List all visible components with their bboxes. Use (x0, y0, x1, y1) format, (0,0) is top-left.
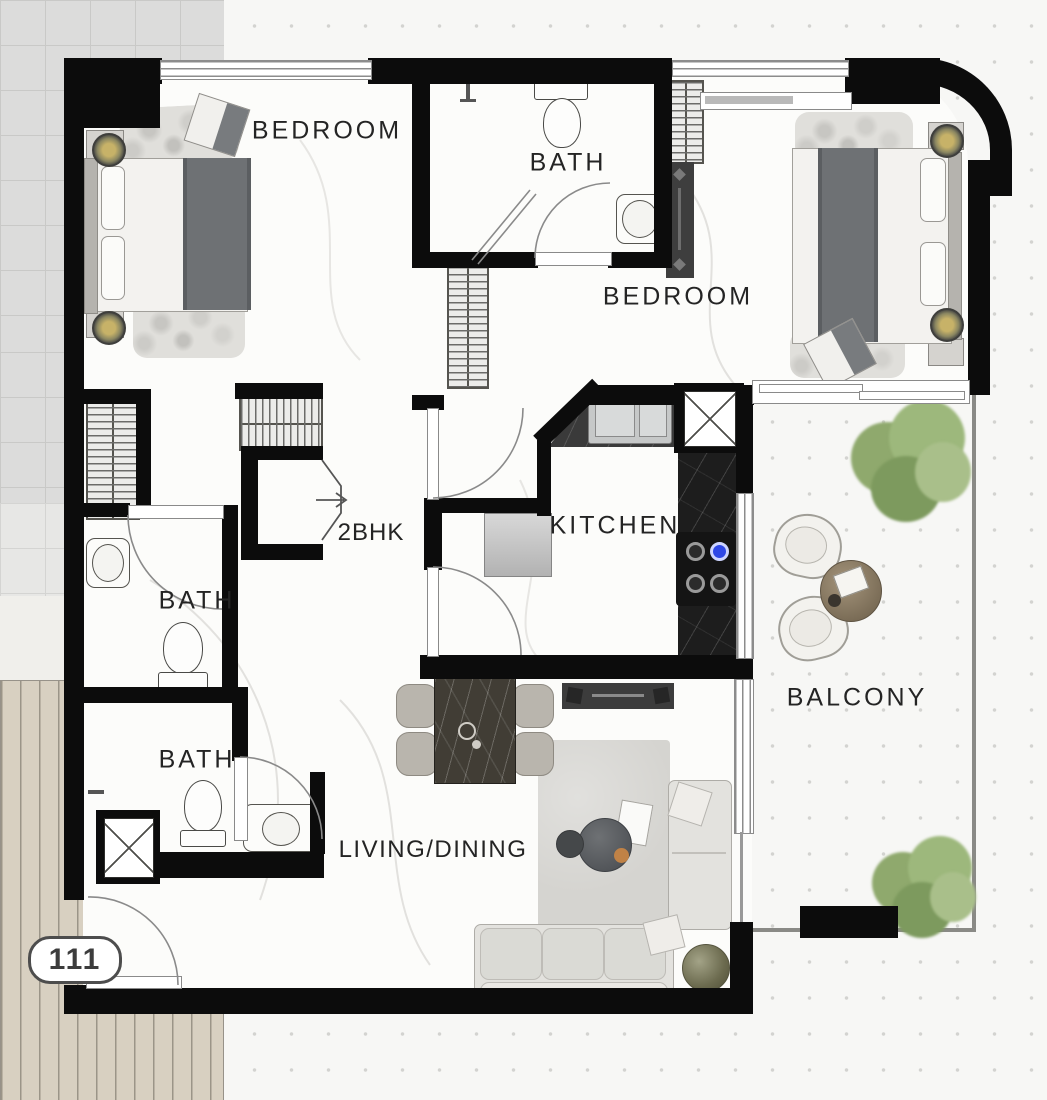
slider-open-line (740, 832, 743, 922)
balcony-slider-frame (752, 380, 970, 404)
bedroom2-curtain-box (700, 92, 852, 110)
bed2-pillow-bottom (920, 242, 946, 306)
dining-chair (396, 732, 438, 776)
bed1-pillow-bottom (101, 236, 125, 300)
dining-chair (512, 684, 554, 728)
wall-dressing-top-b (235, 383, 323, 399)
balcony-table-cup (828, 594, 841, 607)
wall-bath-lower-right-lower (310, 772, 325, 854)
wall-right (968, 160, 990, 395)
wall-bottom-left-stub (64, 985, 88, 1014)
closet-floor (0, 596, 64, 680)
door-leaf-bath-top (535, 252, 612, 266)
shaft-x-icon-bath (104, 818, 154, 878)
sink-icon-bath-lower (262, 812, 300, 846)
wall-closet-bottom (241, 544, 323, 560)
room-label-bath-lower: BATH (159, 746, 236, 775)
wall-bath-middle-top-stub (83, 503, 130, 517)
bowl-accent (614, 848, 629, 863)
kitchen-appliance (484, 513, 552, 577)
wardrobe-icon-bedroom2 (668, 80, 704, 164)
toilet-tank-bath-lower (180, 830, 226, 847)
room-label-bath-middle: BATH (159, 587, 236, 616)
wall-bath-top-bottom-a (412, 252, 538, 268)
window-top-left (160, 60, 372, 80)
wall-top-left-inner-block (66, 84, 160, 128)
door-leaf-bath-lower (234, 757, 248, 841)
wall-bath-top-left (412, 75, 430, 267)
room-label-balcony: BALCONY (787, 684, 927, 713)
dining-decor (458, 722, 476, 740)
sink-icon-bath-top (622, 200, 658, 238)
stove-icon (676, 532, 736, 606)
room-label-bedroom-1: BEDROOM (252, 117, 402, 146)
door-leaf-corridor (427, 408, 439, 500)
dining-chair (512, 732, 554, 776)
toilet-icon-bath-middle (163, 622, 203, 674)
wall-living-right (730, 922, 753, 1014)
toilet-icon-bath-lower (184, 780, 222, 832)
door-leaf-kitchen (427, 567, 439, 657)
unit-number-badge: 111 (28, 936, 122, 984)
shaft-x-icon-kitchen (684, 391, 736, 447)
bed1-blanket (183, 158, 251, 310)
tv-console (562, 683, 674, 709)
door-leaf-bath-middle (128, 505, 224, 519)
bed1-headboard (84, 158, 98, 314)
slider-panel-right (859, 391, 965, 400)
wardrobe-icon-dressing-top (239, 397, 323, 451)
wardrobe-icon-hall (447, 265, 489, 389)
window-kitchen-balcony (736, 493, 754, 659)
toilet-icon-bath-top (543, 98, 581, 148)
sofa-chaise-seam (672, 852, 726, 854)
wall-bottom (85, 988, 753, 1014)
bed1-pillow-top (101, 166, 125, 230)
lamp-icon-bedroom1-bottom (92, 311, 126, 345)
room-label-kitchen: KITCHEN (550, 512, 681, 541)
window-top-right (672, 60, 849, 77)
room-label-bedroom-2: BEDROOM (603, 283, 753, 312)
plant-icon-living (682, 944, 730, 992)
wall-left (64, 58, 84, 900)
sofa-cushion (542, 928, 604, 980)
stove-burner-blue (710, 542, 729, 561)
window-living-balcony (734, 679, 754, 834)
wall-balcony-bottom-block (800, 906, 898, 938)
lamp-icon-bedroom2-bottom (930, 308, 964, 342)
wall-baths-divider (83, 687, 248, 703)
wall-top-left (64, 58, 162, 84)
unit-number: 111 (49, 943, 102, 977)
coffee-table-small (556, 830, 584, 858)
wall-closet-left (241, 446, 258, 558)
wall-bath-top-right (654, 58, 672, 268)
wall-corner-rounded (895, 58, 1012, 196)
dining-decor-small (472, 740, 481, 749)
shower-head-bath-top (460, 99, 476, 102)
room-label-living-dining: LIVING/DINING (339, 836, 528, 864)
coffee-table-large (578, 818, 632, 872)
slider-panel-left (759, 384, 863, 393)
bed2-blanket (818, 148, 878, 342)
lamp-icon-bedroom1-top (92, 133, 126, 167)
floor-plan-canvas: BEDROOM BATH BEDROOM KITCHEN 2BHK BATH B… (0, 0, 1047, 1100)
wall-dressing-vert (136, 389, 151, 513)
plant-icon-balcony-top (843, 400, 973, 530)
tap-icon-bath-lower (88, 790, 104, 794)
room-label-bath-top: BATH (530, 149, 607, 178)
sink-icon-bath-middle (92, 544, 124, 582)
shower-icon-bath-top (466, 84, 470, 100)
wall-kitchen-nook-top (424, 498, 550, 513)
dining-chair (396, 684, 438, 728)
wall-kitchen-bottom (420, 655, 753, 679)
wardrobe-icon-dressing-left (86, 398, 140, 520)
wall-closet-top (241, 446, 323, 460)
room-label-hall-2bhk: 2BHK (338, 519, 405, 547)
wall-kitchen-west-lower (424, 498, 442, 570)
sofa-cushion (480, 928, 542, 980)
